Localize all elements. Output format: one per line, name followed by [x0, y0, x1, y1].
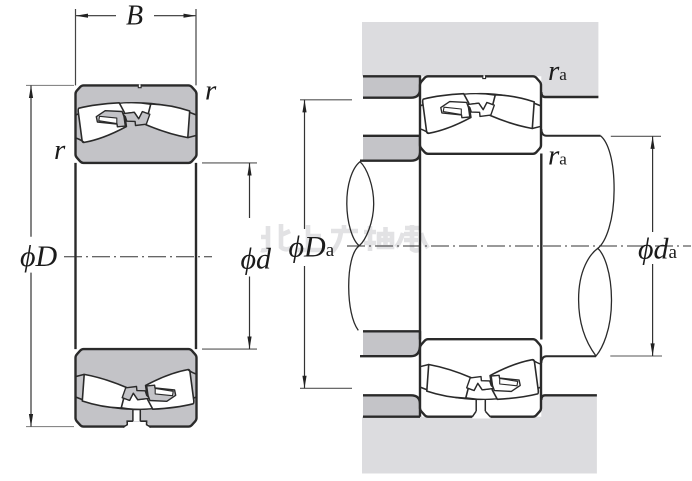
svg-text:ϕDa: ϕDa	[289, 231, 335, 264]
svg-text:r: r	[54, 134, 66, 166]
svg-text:r: r	[205, 75, 217, 107]
svg-text:ϕda: ϕda	[638, 233, 678, 266]
svg-text:B: B	[126, 0, 143, 31]
svg-text:ϕD: ϕD	[20, 240, 58, 273]
svg-text:ϕd: ϕd	[241, 243, 273, 276]
svg-text:ra: ra	[548, 140, 567, 172]
